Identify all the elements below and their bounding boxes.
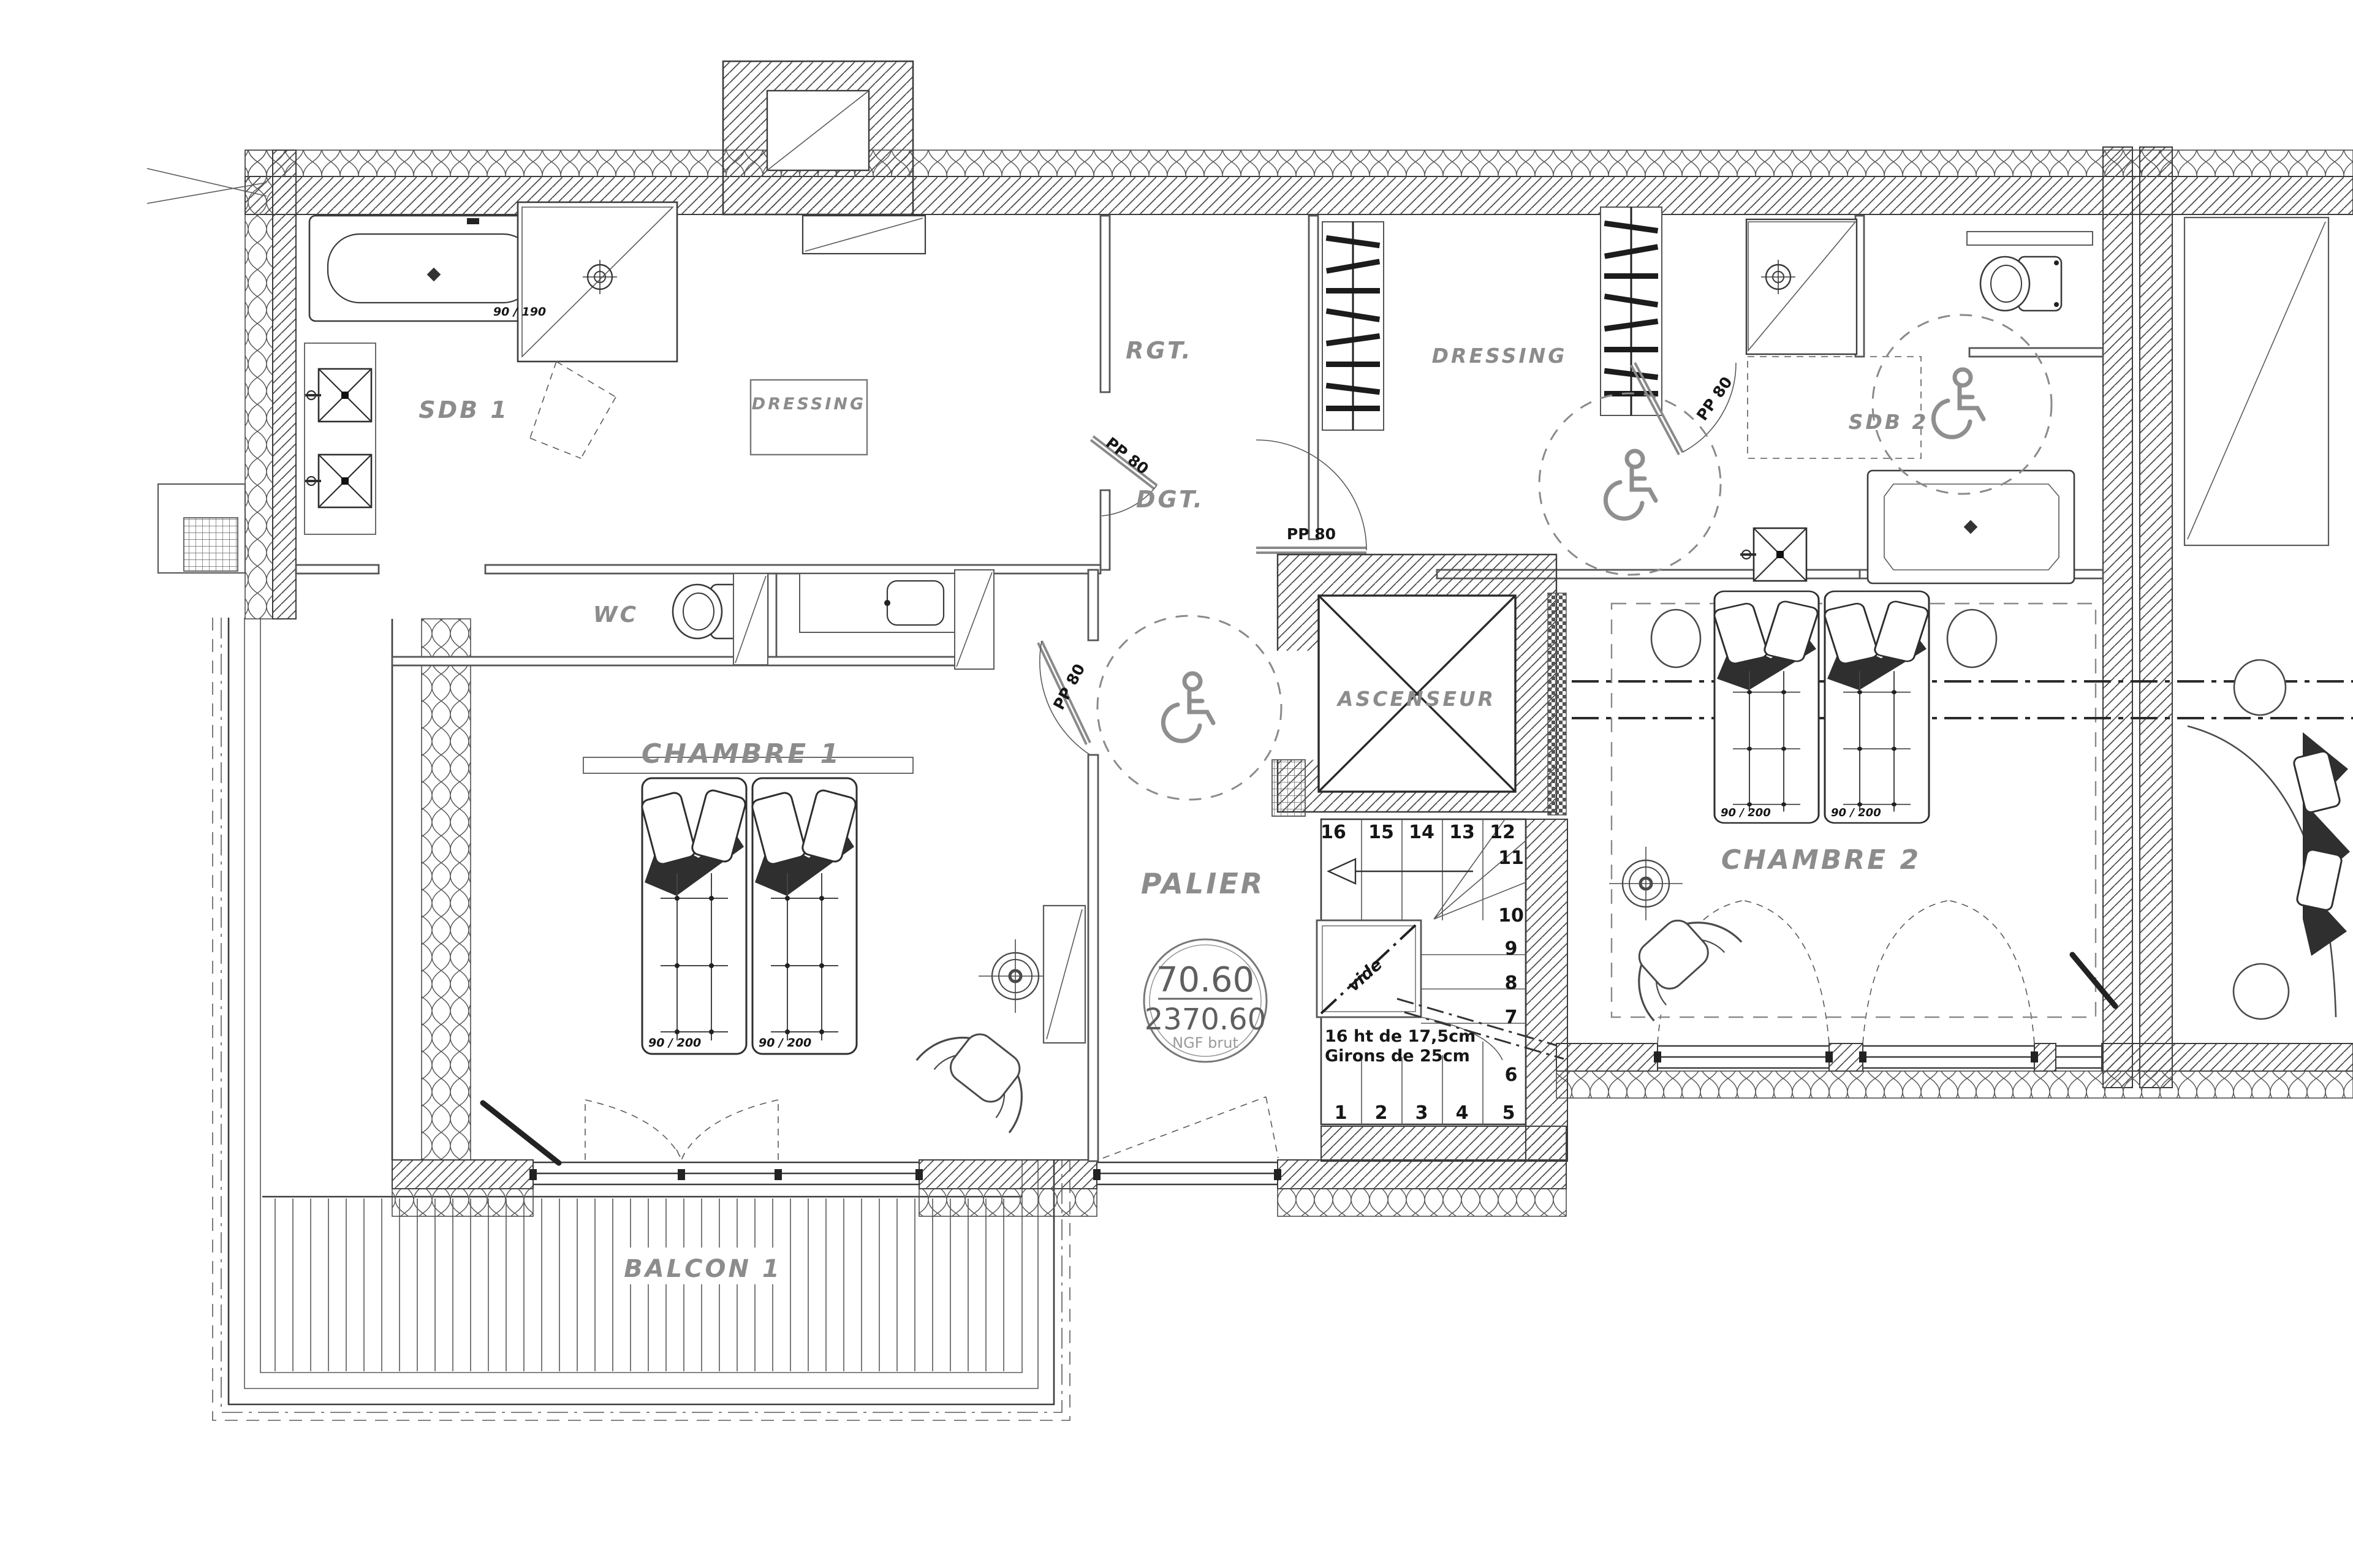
label-dressing1: DRESSING: [752, 395, 866, 414]
wc-tall-cabinet: [955, 570, 994, 669]
stair-num-7: 7: [1505, 1007, 1518, 1028]
vanity-sdb1: [305, 343, 376, 534]
stair-num-14: 14: [1409, 822, 1434, 843]
bed-size-4: 90 / 200: [1831, 806, 1881, 819]
wc-vanity: [800, 574, 955, 632]
exterior-planter: [158, 484, 245, 573]
elevator: [1272, 555, 1566, 816]
stair-num-8: 8: [1505, 972, 1518, 994]
bedside-table-right: [1947, 610, 1996, 667]
label-sdb1: SDB 1: [419, 396, 509, 423]
roof-window: [803, 216, 925, 254]
bedside-table-left: [1651, 610, 1700, 667]
bed-size-1: 90 / 200: [648, 1036, 701, 1050]
level-caption: NGF brut: [1172, 1034, 1238, 1051]
balcony-decking: [262, 1199, 1021, 1371]
stair-num-15: 15: [1368, 822, 1394, 843]
bed1-chambre2: [1713, 591, 1819, 823]
label-rgt: RGT.: [1126, 337, 1193, 364]
tub-size-label: 90 / 190: [493, 305, 546, 319]
wardrobe-chambre1: [1044, 906, 1085, 1043]
bathtub-sdb2: [1868, 471, 2074, 583]
floor-plan-page: SDB 1 DRESSING WC CHAMBRE 1 RGT. DGT. DR…: [0, 0, 2353, 1568]
wc-cabinet: [733, 574, 768, 665]
label-ascenseur: ASCENSEUR: [1336, 687, 1496, 711]
stair-num-12: 12: [1490, 822, 1515, 843]
technical-duct: [1272, 760, 1305, 816]
stair-num-6: 6: [1505, 1064, 1518, 1086]
clothes-rack-2: [1601, 207, 1662, 415]
label-balcon1: BALCON 1: [624, 1255, 782, 1283]
bed-size-2: 90 / 200: [759, 1036, 811, 1050]
label-chambre2: CHAMBRE 2: [1721, 844, 1921, 876]
label-wc: WC: [593, 602, 638, 627]
door-label-dgt: PP 80: [1287, 525, 1336, 543]
label-chambre1: CHAMBRE 1: [642, 738, 841, 770]
elevator-side-duct: [1548, 593, 1566, 815]
floor-plan-drawing: SDB 1 DRESSING WC CHAMBRE 1 RGT. DGT. DR…: [0, 0, 2353, 1568]
label-dgt: DGT.: [1136, 486, 1205, 513]
bed2-chambre2: [1823, 591, 1930, 823]
dressing1-cabinet: [751, 380, 867, 455]
bed2-chambre1: [751, 778, 857, 1054]
stair-num-10: 10: [1498, 905, 1524, 926]
stair-note-2: Girons de 25cm: [1325, 1047, 1470, 1066]
stair-num-5: 5: [1502, 1102, 1515, 1124]
stair-num-4: 4: [1456, 1102, 1469, 1124]
label-palier: PALIER: [1141, 867, 1265, 900]
stair-num-2: 2: [1375, 1102, 1388, 1124]
stair-num-11: 11: [1498, 847, 1524, 869]
shelf-sdb2: [1967, 232, 2093, 245]
stair-num-16: 16: [1320, 822, 1346, 843]
stair-num-9: 9: [1505, 938, 1518, 960]
stair-note-1: 16 ht de 17,5cm: [1325, 1027, 1476, 1046]
clothes-rack-1: [1322, 222, 1384, 430]
stair-num-1: 1: [1335, 1102, 1347, 1124]
bed-size-3: 90 / 200: [1721, 806, 1771, 819]
label-sdb2: SDB 2: [1849, 410, 1929, 434]
toilet-sdb2: [1980, 257, 2061, 311]
stair-num-13: 13: [1449, 822, 1475, 843]
level-lower: 2370.60: [1145, 1002, 1267, 1037]
stair-num-3: 3: [1415, 1102, 1428, 1124]
chimney-duct: [723, 61, 913, 214]
level-upper: 70.60: [1156, 960, 1254, 1000]
bed1-chambre1: [640, 778, 747, 1054]
label-dressing2: DRESSING: [1432, 344, 1567, 368]
